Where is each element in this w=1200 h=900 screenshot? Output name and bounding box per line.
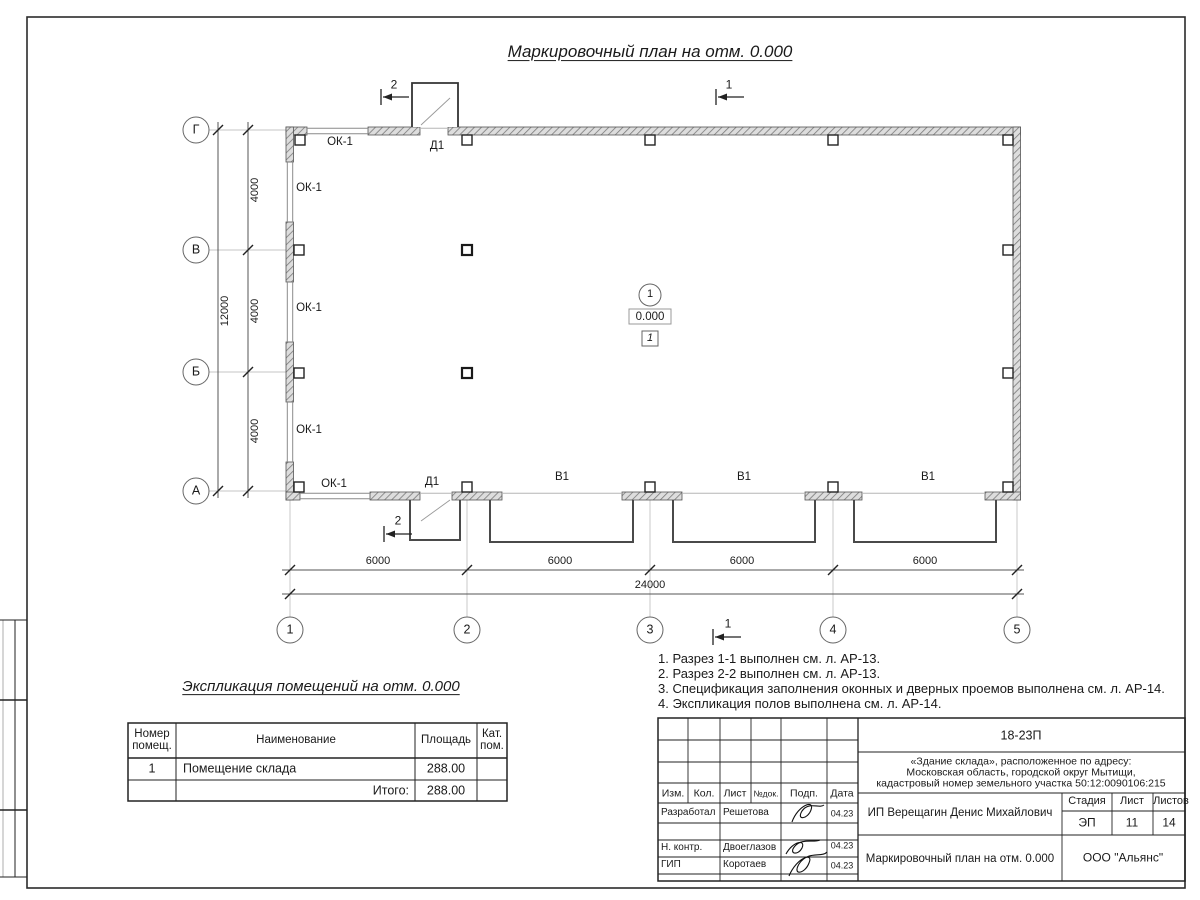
titleblock-col-podp: Подп.: [790, 788, 818, 799]
dim-bottom-segment-3: 6000: [730, 556, 754, 568]
floor-type-mark: 1: [647, 333, 653, 345]
titleblock-row1-name: Решетова: [723, 808, 769, 819]
grid-bubble-row-b: Б: [192, 365, 200, 378]
titleblock-address-line3: кадастровый номер земельного участка 50:…: [876, 778, 1165, 789]
dim-bottom-segment-1: 6000: [366, 556, 390, 568]
note-line-4: 4. Экспликация полов выполнена см. л. АР…: [658, 697, 942, 711]
titleblock-stage-value: ЭП: [1078, 817, 1095, 830]
gate-label-3: В1: [921, 471, 935, 483]
titleblock-sheet-title: Маркировочный план на отм. 0.000: [866, 853, 1054, 865]
section-number-1-top: 1: [726, 79, 733, 92]
dimension-lines: [218, 122, 1024, 594]
titleblock-row3-name: Коротаев: [723, 860, 766, 871]
grid-bubble-row-a: А: [192, 484, 200, 497]
grid-bubble-col-4: 4: [830, 623, 837, 636]
window-label-left-1: ОК-1: [296, 182, 322, 194]
dim-bottom-total: 24000: [635, 580, 666, 592]
room-number-badge: 1: [647, 289, 653, 301]
section-number-1-bottom: 1: [725, 618, 732, 631]
explication-col-area: Площадь: [421, 734, 471, 746]
titleblock-doc-number: 18-23П: [1001, 729, 1042, 742]
drawing-sheet: Маркировочный план на отм. 0.000 Г В Б А…: [0, 0, 1200, 900]
grid-bubble-row-g: Г: [193, 123, 200, 136]
titleblock-list-value: 11: [1126, 817, 1138, 830]
titleblock-col-list: Лист: [724, 788, 747, 799]
dim-left-segment-2: 4000: [250, 299, 262, 323]
grid-bubble-col-1: 1: [287, 623, 294, 636]
section-number-2-bottom: 2: [395, 515, 402, 528]
titleblock-row1-role: Разработал: [661, 808, 715, 819]
titleblock-listov-label: Листов: [1153, 796, 1189, 808]
loading-aprons: [410, 500, 996, 542]
vestibule-outline: [412, 83, 458, 127]
window-label-top: ОК-1: [327, 136, 353, 148]
grid-bubble-col-2: 2: [464, 623, 471, 636]
note-line-1: 1. Разрез 1-1 выполнен см. л. АР-13.: [658, 652, 880, 666]
explication-col-name: Наименование: [256, 734, 336, 746]
titleblock-row2-name: Двоеглазов: [723, 843, 776, 854]
grid-bubble-col-3: 3: [647, 623, 654, 636]
explication-room-name: Помещение склада: [183, 762, 296, 775]
titleblock-row2-role: Н. контр.: [661, 843, 702, 854]
dim-left-segment-1: 4000: [250, 178, 262, 202]
titleblock-row3-date: 04.23: [831, 861, 854, 870]
door-swing-bottom: [421, 500, 450, 521]
titleblock-col-data: Дата: [830, 788, 853, 799]
titleblock-row1-date: 04.23: [831, 809, 854, 818]
titleblock-client: ИП Верещагин Денис Михайлович: [868, 807, 1053, 819]
explication-total-value: 288.00: [427, 784, 465, 797]
titleblock-list-label: Лист: [1120, 796, 1144, 808]
dim-bottom-segment-2: 6000: [548, 556, 572, 568]
titleblock-stage-label: Стадия: [1068, 796, 1106, 808]
titleblock-listov-value: 14: [1162, 817, 1175, 830]
opening-lines: [420, 128, 985, 493]
grid-bubble-row-v: В: [192, 243, 200, 256]
dim-bottom-segment-4: 6000: [913, 556, 937, 568]
explication-col-number: Номер помещ.: [130, 728, 174, 752]
titleblock-row3-role: ГИП: [661, 860, 681, 871]
grid-bubble-col-5: 5: [1014, 623, 1021, 636]
window-label-left-3: ОК-1: [296, 424, 322, 436]
main-title: Маркировочный план на отм. 0.000: [508, 43, 793, 61]
window-label-left-2: ОК-1: [296, 302, 322, 314]
side-stamp-strip: [0, 620, 27, 877]
door-label-bottom: Д1: [425, 476, 439, 488]
gate-label-1: В1: [555, 471, 569, 483]
elevation-mark: 0.000: [636, 311, 665, 323]
explication-total-label: Итого:: [373, 784, 409, 797]
titleblock-col-kol: Кол.: [694, 788, 715, 799]
note-line-2: 2. Разрез 2-2 выполнен см. л. АР-13.: [658, 667, 880, 681]
titleblock-company: ООО "Альянс": [1083, 852, 1163, 865]
section-number-2-top: 2: [391, 79, 398, 92]
explication-title: Экспликация помещений на отм. 0.000: [182, 679, 459, 695]
grid-bubbles: [183, 117, 1030, 643]
titleblock-row2-date: 04.23: [831, 841, 854, 850]
dim-left-segment-3: 4000: [250, 419, 262, 443]
axis-extension-lines: [209, 130, 1017, 617]
titleblock-col-doc: №док.: [754, 790, 779, 799]
titleblock-col-izm: Изм.: [662, 788, 685, 799]
note-line-3: 3. Спецификация заполнения оконных и две…: [658, 682, 1165, 696]
window-label-bottom: ОК-1: [321, 478, 347, 490]
explication-room-number: 1: [149, 762, 156, 775]
gate-label-2: В1: [737, 471, 751, 483]
door-label-top: Д1: [430, 140, 444, 152]
explication-room-area: 288.00: [427, 762, 465, 775]
dimension-ticks: [213, 125, 1022, 599]
dim-left-total: 12000: [220, 296, 232, 327]
explication-col-cat: Кат. пом.: [477, 728, 507, 752]
interior-columns: [462, 245, 472, 378]
